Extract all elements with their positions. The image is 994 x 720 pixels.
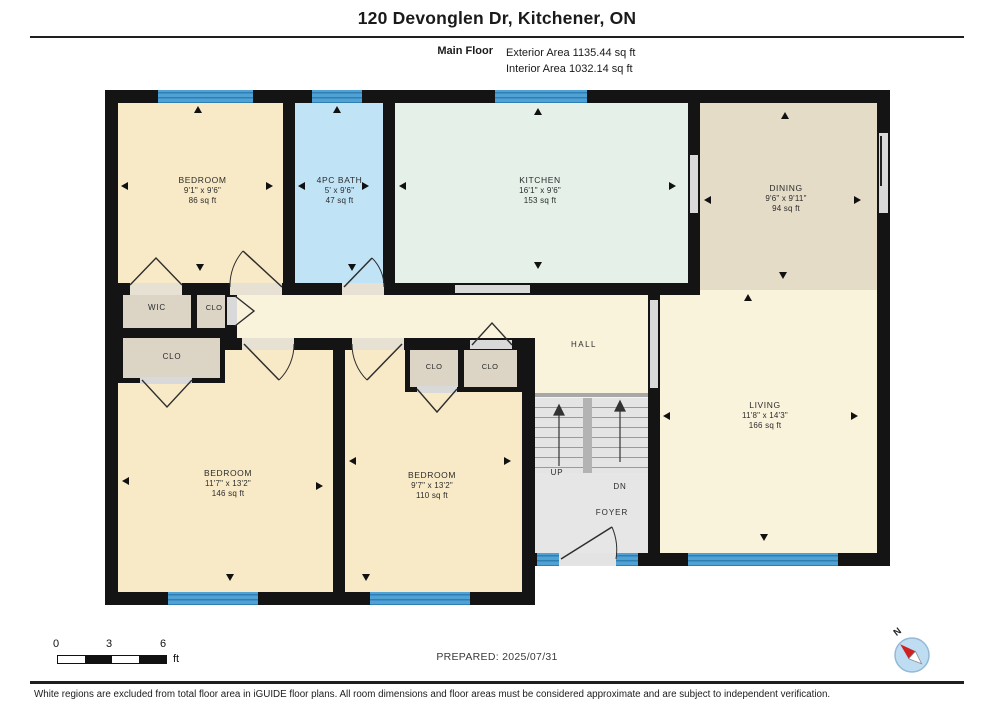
window-foyer-left [537,553,559,566]
exterior-area: Exterior Area 1135.44 sq ft [506,45,635,61]
dim-arrow [760,534,768,541]
dim-arrow [333,106,341,113]
dim-arrow [194,106,202,113]
label-kitchen: KITCHEN 16'1" x 9'6" 153 sq ft [460,175,620,207]
dim-arrow [854,196,861,204]
stair-edge [535,393,648,397]
footer-divider [30,681,964,684]
dim-arrow [781,112,789,119]
prepared-date: PREPARED: 2025/07/31 [0,651,994,663]
wall-bed2-bed3 [333,350,345,592]
wall-bed1-bath [283,103,295,283]
window-bath [312,90,362,103]
doorway-bedroom1 [230,283,282,295]
scale-tick-3: 3 [106,638,112,650]
dim-arrow [362,574,370,581]
compass: N [885,618,941,678]
label-clo4: CLO [466,362,514,371]
opening-kitchen-hall [455,285,530,293]
window-bedroom2 [168,592,258,605]
dim-arrow [504,457,511,465]
doorway-clo4 [470,340,512,349]
window-living [688,553,838,566]
page-title: 120 Devonglen Dr, Kitchener, ON [0,8,994,29]
wall-bath-kitchen [383,103,395,283]
scale-tick-6: 6 [160,638,166,650]
wall-bed3-stairs [522,338,535,553]
stair-flight-down [592,398,648,473]
sliding-door-dining [879,133,888,213]
dim-arrow [779,272,787,279]
wall-hall-top [105,283,700,295]
label-hall: HALL [558,340,610,349]
dim-arrow [121,182,128,190]
label-bath: 4PC BATH 5' x 9'6" 47 sq ft [297,175,382,207]
dim-arrow [663,412,670,420]
doorway-bedroom3 [352,338,404,350]
opening-kitchen-dining [690,155,698,213]
stair-divider [583,398,592,478]
dim-arrow [534,108,542,115]
dim-arrow [349,457,356,465]
label-bedroom3: BEDROOM 9'7" x 13'2" 110 sq ft [352,470,512,502]
dim-arrow [669,182,676,190]
doorway-wic [130,283,182,295]
floor-label: Main Floor [380,45,493,57]
stair-flight-up [535,398,583,478]
doorway-bath [342,283,384,295]
label-clo3: CLO [410,362,458,371]
doorway-entry [559,553,616,566]
area-summary: Exterior Area 1135.44 sq ft Interior Are… [506,45,635,77]
dim-arrow [226,574,234,581]
label-foyer: FOYER [582,508,642,517]
dim-arrow [851,412,858,420]
wall-hall-bottom-b [294,338,352,350]
doorway-clo2 [140,377,192,384]
dim-arrow [316,482,323,490]
wall-outer-left [105,90,118,605]
label-bedroom2: BEDROOM 11'7" x 13'2" 146 sq ft [148,468,308,500]
window-foyer-right [616,553,638,566]
window-bedroom3 [370,592,470,605]
window-kitchen [495,90,587,103]
header-divider [30,36,964,38]
label-clo2: CLO [146,352,198,361]
dim-arrow [348,264,356,271]
label-wic: WIC [133,303,181,312]
dim-arrow [266,182,273,190]
dim-arrow [196,264,204,271]
dim-arrow [362,182,369,190]
compass-north-label: N [892,626,904,639]
scale-tick-0: 0 [53,638,59,650]
dim-arrow [399,182,406,190]
wall-hall-bottom-a [225,338,242,350]
label-living: LIVING 11'8" x 14'3" 166 sq ft [685,400,845,432]
dim-arrow [298,182,305,190]
label-clo1: CLO [196,303,232,312]
label-dn: DN [604,482,636,491]
label-dining: DINING 9'6" x 9'11" 94 sq ft [706,183,866,215]
disclaimer-text: White regions are excluded from total fl… [34,689,830,700]
dim-arrow [744,294,752,301]
dim-arrow [704,196,711,204]
doorway-clo3 [417,386,457,393]
label-bedroom1: BEDROOM 9'1" x 9'6" 86 sq ft [130,175,275,207]
window-bedroom1 [158,90,253,103]
doorway-bedroom2 [242,338,294,350]
dim-arrow [122,477,129,485]
dim-arrow [534,262,542,269]
floorplan-page: 120 Devonglen Dr, Kitchener, ON Main Flo… [0,0,994,720]
label-up: UP [541,468,573,477]
interior-area: Interior Area 1032.14 sq ft [506,61,635,77]
opening-hall-living [650,300,658,388]
